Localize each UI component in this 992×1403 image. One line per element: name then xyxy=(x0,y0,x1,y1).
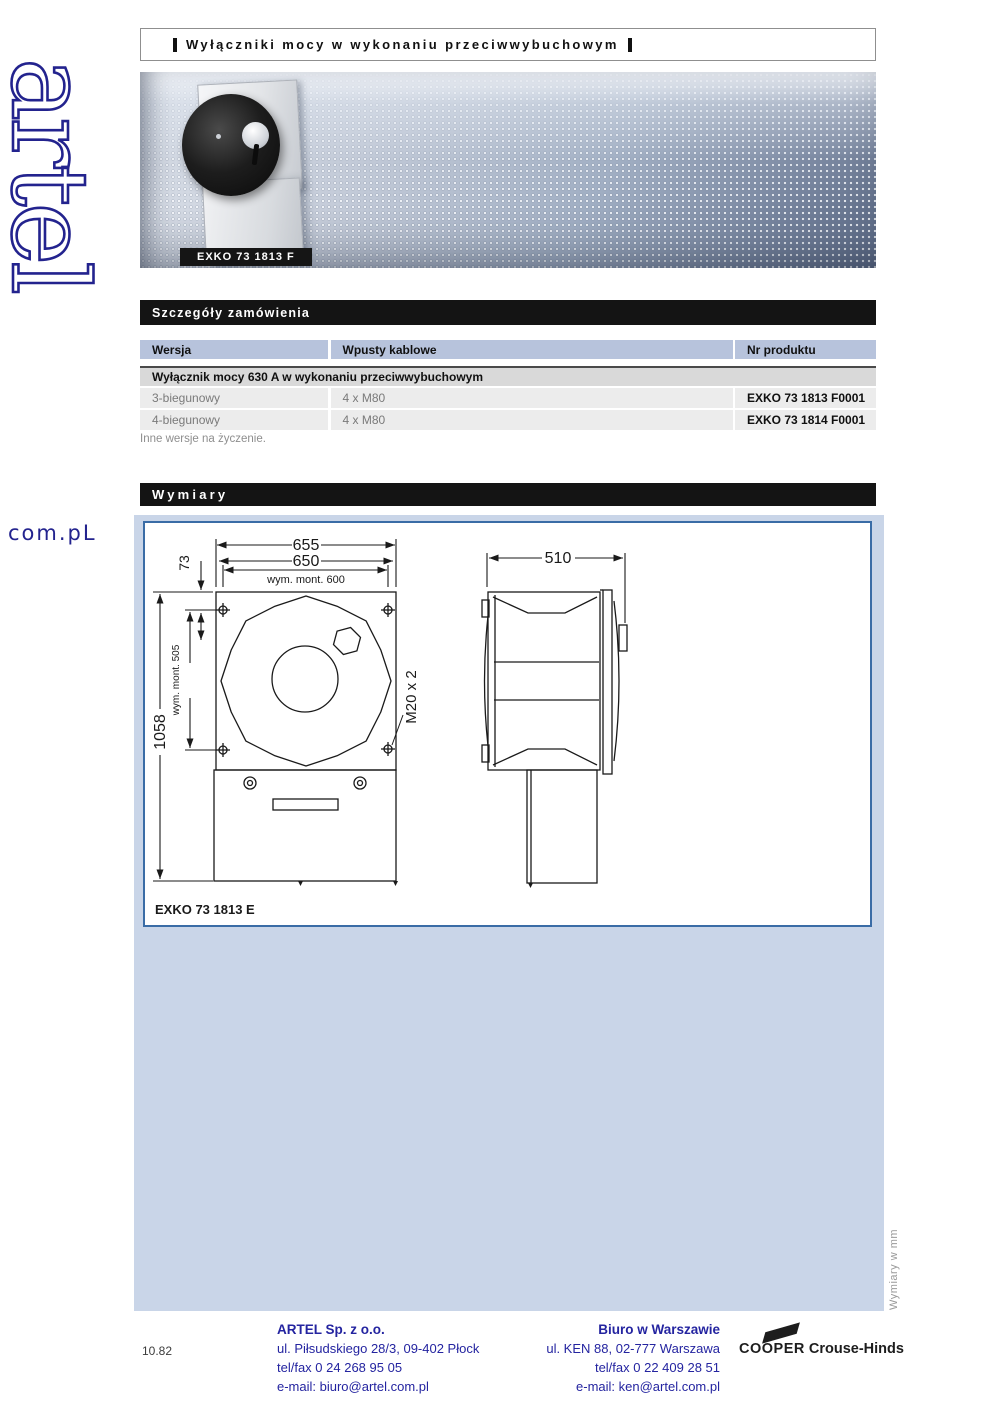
crouse-hinds-wordmark: Crouse-Hinds xyxy=(809,1341,904,1357)
cooper-brand-text: COOPER Crouse-Hinds xyxy=(739,1341,904,1357)
cell-product-no: EXKO 73 1813 F0001 xyxy=(735,388,876,408)
dim-top-offset: 73 xyxy=(176,555,192,571)
dimension-labels: 655 650 wym. mont. 600 73 1058 wym. mont… xyxy=(152,537,571,917)
dim-width-overall: 655 xyxy=(293,537,320,554)
cell-glands: 4 x M80 xyxy=(331,410,733,430)
office-address: ul. KEN 88, 02-777 Warszawa xyxy=(465,1339,720,1358)
front-view xyxy=(214,592,403,886)
page-title: Wyłączniki mocy w wykonaniu przeciwwybuc… xyxy=(186,37,619,52)
front-view-dimensions xyxy=(153,539,396,881)
order-table-header-row: Wersja Wpusty kablowe Nr produktu xyxy=(140,340,876,359)
dimensions-section-header: Wymiary xyxy=(140,483,876,506)
technical-drawing-panel: 655 650 wym. mont. 600 73 1058 wym. mont… xyxy=(143,521,872,927)
order-table-group-header: Wyłącznik mocy 630 A w wykonaniu przeciw… xyxy=(140,366,876,386)
page-title-box: Wyłączniki mocy w wykonaniu przeciwwybuc… xyxy=(140,28,876,61)
device-front-cover xyxy=(182,94,280,196)
product-photo-label: EXKO 73 1813 F xyxy=(180,248,312,266)
dim-width-cover: 650 xyxy=(293,553,320,570)
footer-office-block: Biuro w Warszawie ul. KEN 88, 02-777 War… xyxy=(465,1320,720,1396)
product-device-illustration xyxy=(176,78,326,266)
catalog-page: artel com.pL Wyłączniki mocy w wykonaniu… xyxy=(0,0,992,1403)
technical-drawing: 655 650 wym. mont. 600 73 1058 wym. mont… xyxy=(145,523,870,925)
dim-height-overall: 1058 xyxy=(152,714,169,750)
office-name: Biuro w Warszawie xyxy=(465,1320,720,1339)
table-row: 3-biegunowy 4 x M80 EXKO 73 1813 F0001 xyxy=(140,388,876,408)
order-section-header: Szczegóły zamówienia xyxy=(140,300,876,325)
cell-version: 3-biegunowy xyxy=(140,388,328,408)
column-header-version: Wersja xyxy=(140,340,328,359)
cell-version: 4-biegunowy xyxy=(140,410,328,430)
product-photo: EXKO 73 1813 F xyxy=(140,72,876,268)
office-telfax: tel/fax 0 22 409 28 51 xyxy=(465,1358,720,1377)
brand-logo-vertical: artel xyxy=(0,58,92,528)
dim-height-mount: wym. mont. 505 xyxy=(171,644,182,716)
device-indicator-dot xyxy=(216,134,221,139)
office-email-link[interactable]: e-mail: ken@artel.com.pl xyxy=(465,1377,720,1396)
brand-domain: com.pL xyxy=(8,521,97,545)
cell-glands: 4 x M80 xyxy=(331,388,733,408)
dim-thread: M20 x 2 xyxy=(403,670,420,723)
drawing-label: EXKO 73 1813 E xyxy=(155,902,255,917)
title-bar-icon xyxy=(173,38,177,52)
dimensions-background-panel: 655 650 wym. mont. 600 73 1058 wym. mont… xyxy=(134,515,884,1311)
cell-product-no: EXKO 73 1814 F0001 xyxy=(735,410,876,430)
column-header-product-no: Nr produktu xyxy=(735,340,876,359)
order-footnote: Inne wersje na życzenie. xyxy=(140,433,266,445)
dim-width-mount: wym. mont. 600 xyxy=(266,574,345,586)
page-number: 10.82 xyxy=(142,1344,172,1358)
cooper-wordmark: COOPER xyxy=(739,1341,805,1357)
column-header-glands: Wpusty kablowe xyxy=(331,340,733,359)
order-table: Wersja Wpusty kablowe Nr produktu Wyłącz… xyxy=(140,340,876,430)
dim-depth: 510 xyxy=(545,550,572,567)
table-row: 4-biegunowy 4 x M80 EXKO 73 1814 F0001 xyxy=(140,410,876,430)
title-bar-icon xyxy=(628,38,632,52)
side-view xyxy=(482,590,627,888)
units-caption: Wymiary w mm xyxy=(888,1226,904,1310)
